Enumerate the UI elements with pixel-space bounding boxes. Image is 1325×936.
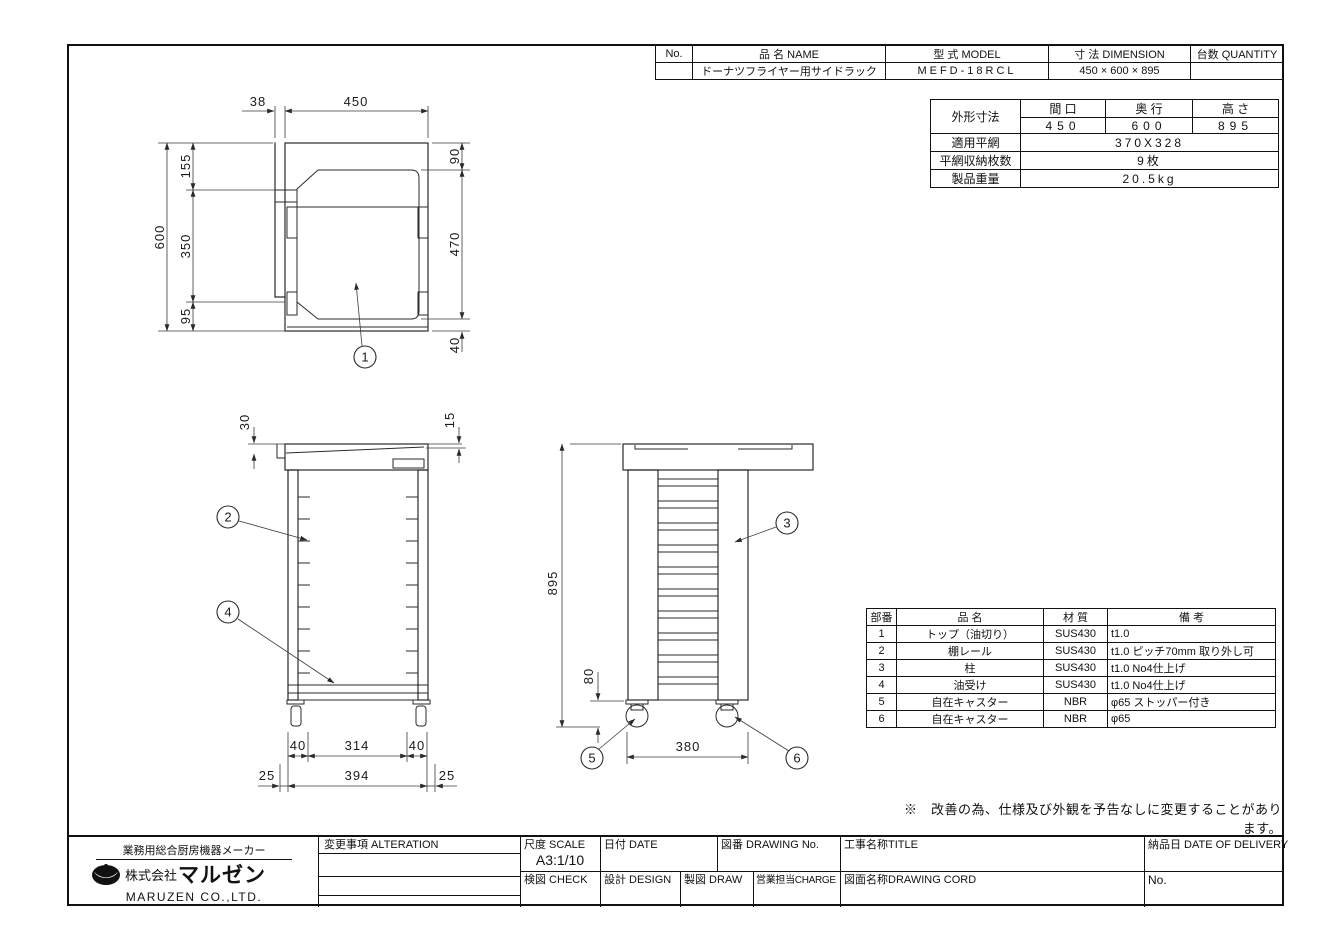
product-header-table: No. 品 名 NAME 型 式 MODEL 寸 法 DIMENSION 台数 … [655, 45, 1284, 80]
parts-row: 6 自在キャスター NBR φ65 [867, 711, 1276, 728]
front-view-drawing: 2 4 30 15 40 314 40 [217, 412, 466, 792]
alteration-label: 変更事項 ALTERATION [324, 839, 439, 852]
scale-label: 尺度 SCALE [524, 839, 585, 852]
balloon-3-number: 3 [783, 516, 790, 531]
company-name-en: MARUZEN CO.,LTD. [96, 890, 292, 904]
dim-38: 38 [250, 94, 266, 109]
spec-weight-label: 製品重量 [931, 170, 1021, 188]
divider [717, 837, 718, 872]
parts-col-material: 材 質 [1044, 609, 1108, 626]
dim-15: 15 [442, 412, 457, 428]
dim-40: 40 [447, 337, 462, 353]
balloon-1-number: 1 [361, 350, 368, 365]
dim-450: 450 [344, 94, 369, 109]
disclaimer-note: ※ 改善の為、仕様及び外観を予告なしに変更することがあります。 [900, 799, 1282, 837]
title-block: 業務用総合厨房機器メーカー 株式会社 マルゼン MARUZEN CO.,LTD.… [68, 835, 1283, 907]
dim-155: 155 [178, 154, 193, 179]
spec-net-label: 適用平網 [931, 134, 1021, 152]
parts-row: 4 油受け SUS430 t1.0 No4仕上げ [867, 677, 1276, 694]
divider [680, 872, 681, 907]
divider [318, 837, 319, 907]
dim-40-left: 40 [290, 738, 306, 753]
parts-row: 5 自在キャスター NBR φ65 ストッパー付き [867, 694, 1276, 711]
dim-25-right: 25 [439, 768, 455, 783]
scale-value: A3:1/10 [520, 852, 600, 868]
title-label: 工事名称TITLE [844, 839, 918, 852]
spec-width-label: 間 口 [1021, 100, 1106, 118]
spec-table: 外形寸法 間 口 奥 行 高 さ 450 600 895 適用平網 370X32… [930, 99, 1279, 188]
divider [753, 872, 754, 907]
drawing-no-label: 図番 DRAWING No. [721, 839, 819, 852]
no-label: No. [1148, 874, 1167, 887]
spec-depth-value: 600 [1106, 118, 1193, 134]
charge-label: 営業担当CHARGE [756, 874, 836, 887]
parts-row: 1 トップ（油切り） SUS430 t1.0 [867, 626, 1276, 643]
divider [318, 876, 520, 877]
spec-capacity-label: 平網収納枚数 [931, 152, 1021, 170]
balloon-6-number: 6 [793, 751, 800, 766]
dim-600: 600 [152, 225, 167, 250]
dim-895: 895 [545, 571, 560, 596]
dim-25-left: 25 [259, 768, 275, 783]
divider [318, 895, 520, 896]
parts-table: 部番 品 名 材 質 備 考 1 トップ（油切り） SUS430 t1.0 2 … [866, 608, 1276, 728]
parts-col-name: 品 名 [897, 609, 1044, 626]
col-no: No. [656, 46, 693, 63]
dim-30: 30 [237, 414, 252, 430]
parts-row: 2 棚レール SUS430 t1.0 ピッチ70mm 取り外し可 [867, 643, 1276, 660]
company-logo-row: 株式会社 マルゼン [90, 859, 266, 889]
col-quantity: 台数 QUANTITY [1191, 46, 1284, 63]
dim-314: 314 [345, 738, 370, 753]
company-name-logo: マルゼン [178, 859, 266, 889]
divider [520, 837, 521, 907]
cell-model: MEFD-18RCL [886, 63, 1049, 80]
balloon-5-number: 5 [588, 751, 595, 766]
spec-overall-label: 外形寸法 [931, 100, 1021, 134]
draw-label: 製図 DRAW [684, 874, 742, 887]
plan-view-drawing: 1 38 450 600 155 350 95 [152, 94, 470, 368]
design-label: 設計 DESIGN [604, 874, 671, 887]
side-view-drawing: 895 80 380 3 5 6 [545, 444, 813, 769]
col-name: 品 名 NAME [693, 46, 886, 63]
date-label: 日付 DATE [604, 839, 658, 852]
divider [840, 837, 841, 907]
balloon-4-number: 4 [224, 605, 231, 620]
cell-no [656, 63, 693, 80]
side-casters [626, 700, 738, 727]
dim-380: 380 [676, 739, 701, 754]
spec-width-value: 450 [1021, 118, 1106, 134]
check-label: 検図 CHECK [524, 874, 588, 887]
drawing-cord-label: 図面名称DRAWING CORD [844, 874, 976, 887]
col-model: 型 式 MODEL [886, 46, 1049, 63]
cell-product-name: ドーナツフライヤー用サイドラック [693, 63, 886, 80]
spec-weight-value: 20.5kg [1021, 170, 1279, 188]
dim-350: 350 [178, 234, 193, 259]
col-dimension: 寸 法 DIMENSION [1049, 46, 1191, 63]
divider [600, 837, 601, 907]
front-casters [287, 700, 430, 726]
delivery-label: 納品日 DATE OF DELIVERY [1148, 839, 1288, 852]
dim-80: 80 [581, 668, 596, 684]
spec-height-value: 895 [1193, 118, 1279, 134]
cell-quantity [1191, 63, 1284, 80]
balloon-2-number: 2 [224, 510, 231, 525]
divider [318, 853, 520, 854]
shelf-rail-marks [298, 497, 418, 673]
divider [520, 871, 1283, 872]
dim-90: 90 [447, 148, 462, 164]
spec-capacity-value: 9枚 [1021, 152, 1279, 170]
drawing-sheet: 1 38 450 600 155 350 95 [0, 0, 1325, 936]
dim-95: 95 [178, 308, 193, 324]
dim-470: 470 [447, 232, 462, 257]
parts-row: 3 柱 SUS430 t1.0 No4仕上げ [867, 660, 1276, 677]
cell-dimension: 450 × 600 × 895 [1049, 63, 1191, 80]
shelf-rails-side [658, 479, 718, 684]
spec-height-label: 高 さ [1193, 100, 1279, 118]
spec-depth-label: 奥 行 [1106, 100, 1193, 118]
company-prefix: 株式会社 [125, 865, 177, 884]
parts-col-no: 部番 [867, 609, 897, 626]
parts-col-note: 備 考 [1108, 609, 1276, 626]
dim-40-right: 40 [409, 738, 425, 753]
company-tagline: 業務用総合厨房機器メーカー [96, 842, 292, 860]
spec-net-value: 370X328 [1021, 134, 1279, 152]
divider [1144, 837, 1145, 907]
dim-394: 394 [345, 768, 370, 783]
maruzen-logo-icon [90, 861, 122, 887]
